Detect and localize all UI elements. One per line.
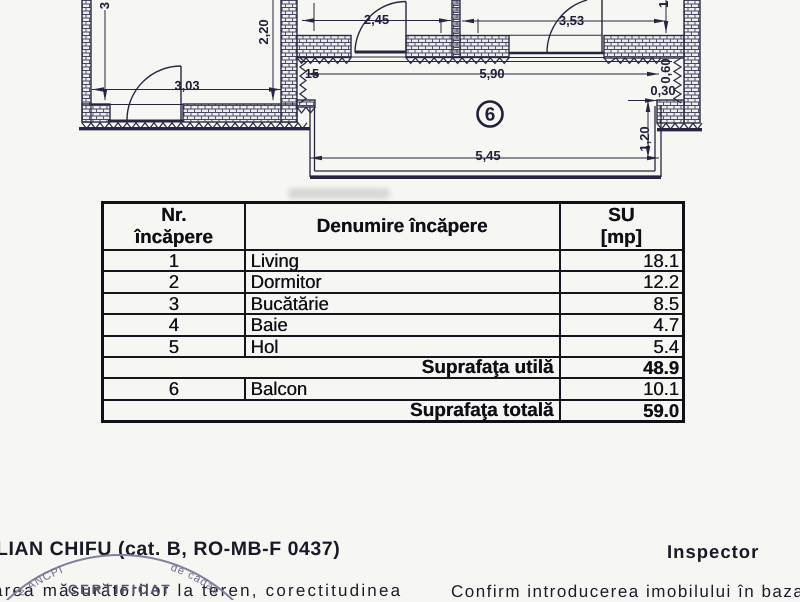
svg-text:0,30: 0,30 (650, 83, 675, 98)
svg-text:3: 3 (97, 2, 112, 9)
svg-text:6: 6 (485, 105, 496, 126)
svg-text:1,20: 1,20 (637, 126, 652, 151)
svg-text:CERTIFICAT: CERTIFICAT (68, 582, 172, 597)
svg-text:5,90: 5,90 (479, 66, 504, 81)
svg-text:5,45: 5,45 (475, 148, 500, 163)
svg-text:3,03: 3,03 (174, 78, 199, 93)
svg-text:2,45: 2,45 (364, 12, 389, 27)
svg-text:0,60: 0,60 (658, 58, 673, 83)
svg-text:2,20: 2,20 (256, 19, 271, 44)
svg-text:3,53: 3,53 (559, 13, 584, 28)
svg-text:15: 15 (305, 66, 319, 81)
svg-text:1,15: 1,15 (656, 0, 671, 8)
